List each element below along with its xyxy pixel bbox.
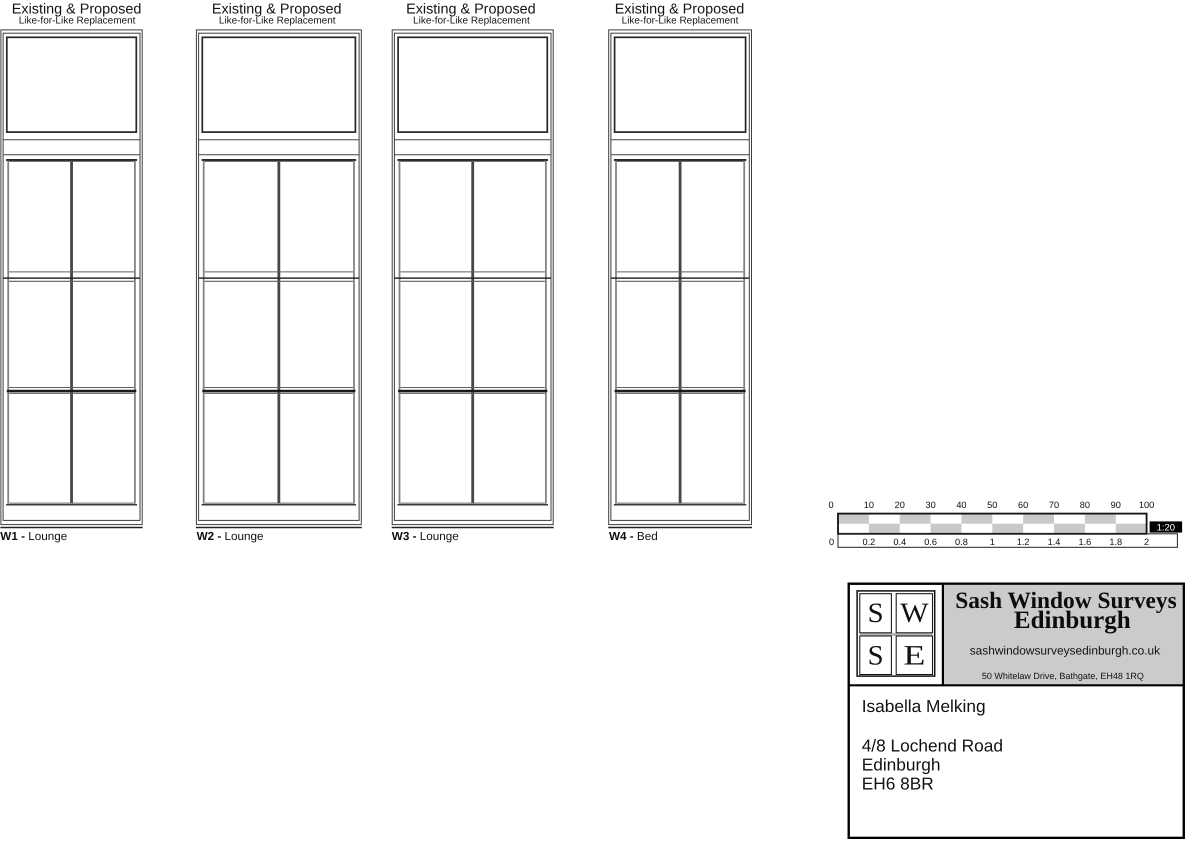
svg-text:Like-for-Like Replacement: Like-for-Like Replacement <box>219 15 336 26</box>
svg-text:W1 - Lounge: W1 - Lounge <box>0 530 67 543</box>
svg-text:Edinburgh: Edinburgh <box>862 754 941 774</box>
svg-text:W: W <box>900 598 929 629</box>
svg-text:0.6: 0.6 <box>924 537 937 547</box>
svg-text:EH6 8BR: EH6 8BR <box>862 773 934 793</box>
svg-text:Like-for-Like Replacement: Like-for-Like Replacement <box>413 15 530 26</box>
svg-text:80: 80 <box>1080 500 1090 510</box>
svg-text:0.8: 0.8 <box>955 537 968 547</box>
svg-text:Like-for-Like Replacement: Like-for-Like Replacement <box>622 15 739 26</box>
svg-text:W2 - Lounge: W2 - Lounge <box>197 530 264 543</box>
svg-text:0: 0 <box>828 500 833 510</box>
svg-text:1: 1 <box>990 537 995 547</box>
svg-text:W3 - Lounge: W3 - Lounge <box>392 530 459 543</box>
svg-text:Edinburgh: Edinburgh <box>1014 607 1131 634</box>
svg-text:0.2: 0.2 <box>862 537 875 547</box>
svg-text:30: 30 <box>925 500 935 510</box>
svg-text:1.6: 1.6 <box>1078 537 1091 547</box>
svg-text:100: 100 <box>1139 500 1154 510</box>
svg-text:1.8: 1.8 <box>1109 537 1122 547</box>
svg-text:Like-for-Like Replacement: Like-for-Like Replacement <box>19 15 136 26</box>
svg-text:70: 70 <box>1049 500 1059 510</box>
svg-text:4/8 Lochend Road: 4/8 Lochend Road <box>862 736 1003 756</box>
svg-text:W4 - Bed: W4 - Bed <box>609 530 658 543</box>
svg-text:E: E <box>903 641 925 672</box>
svg-text:0.4: 0.4 <box>893 537 906 547</box>
svg-text:2: 2 <box>1144 537 1149 547</box>
svg-text:90: 90 <box>1111 500 1121 510</box>
svg-text:1:20: 1:20 <box>1157 521 1175 532</box>
svg-text:Isabella Melking: Isabella Melking <box>862 696 986 716</box>
svg-text:20: 20 <box>895 500 905 510</box>
svg-text:40: 40 <box>956 500 966 510</box>
svg-text:0: 0 <box>829 537 834 547</box>
svg-text:1.2: 1.2 <box>1017 537 1030 547</box>
svg-text:S: S <box>868 598 884 629</box>
svg-text:S: S <box>868 641 884 672</box>
svg-text:60: 60 <box>1018 500 1028 510</box>
svg-text:50: 50 <box>987 500 997 510</box>
svg-text:10: 10 <box>864 500 874 510</box>
svg-text:1.4: 1.4 <box>1048 537 1061 547</box>
svg-text:50 Whitelaw Drive, Bathgate, E: 50 Whitelaw Drive, Bathgate, EH48 1RQ <box>982 671 1144 681</box>
svg-text:sashwindowsurveysedinburgh.co.: sashwindowsurveysedinburgh.co.uk <box>970 644 1160 658</box>
